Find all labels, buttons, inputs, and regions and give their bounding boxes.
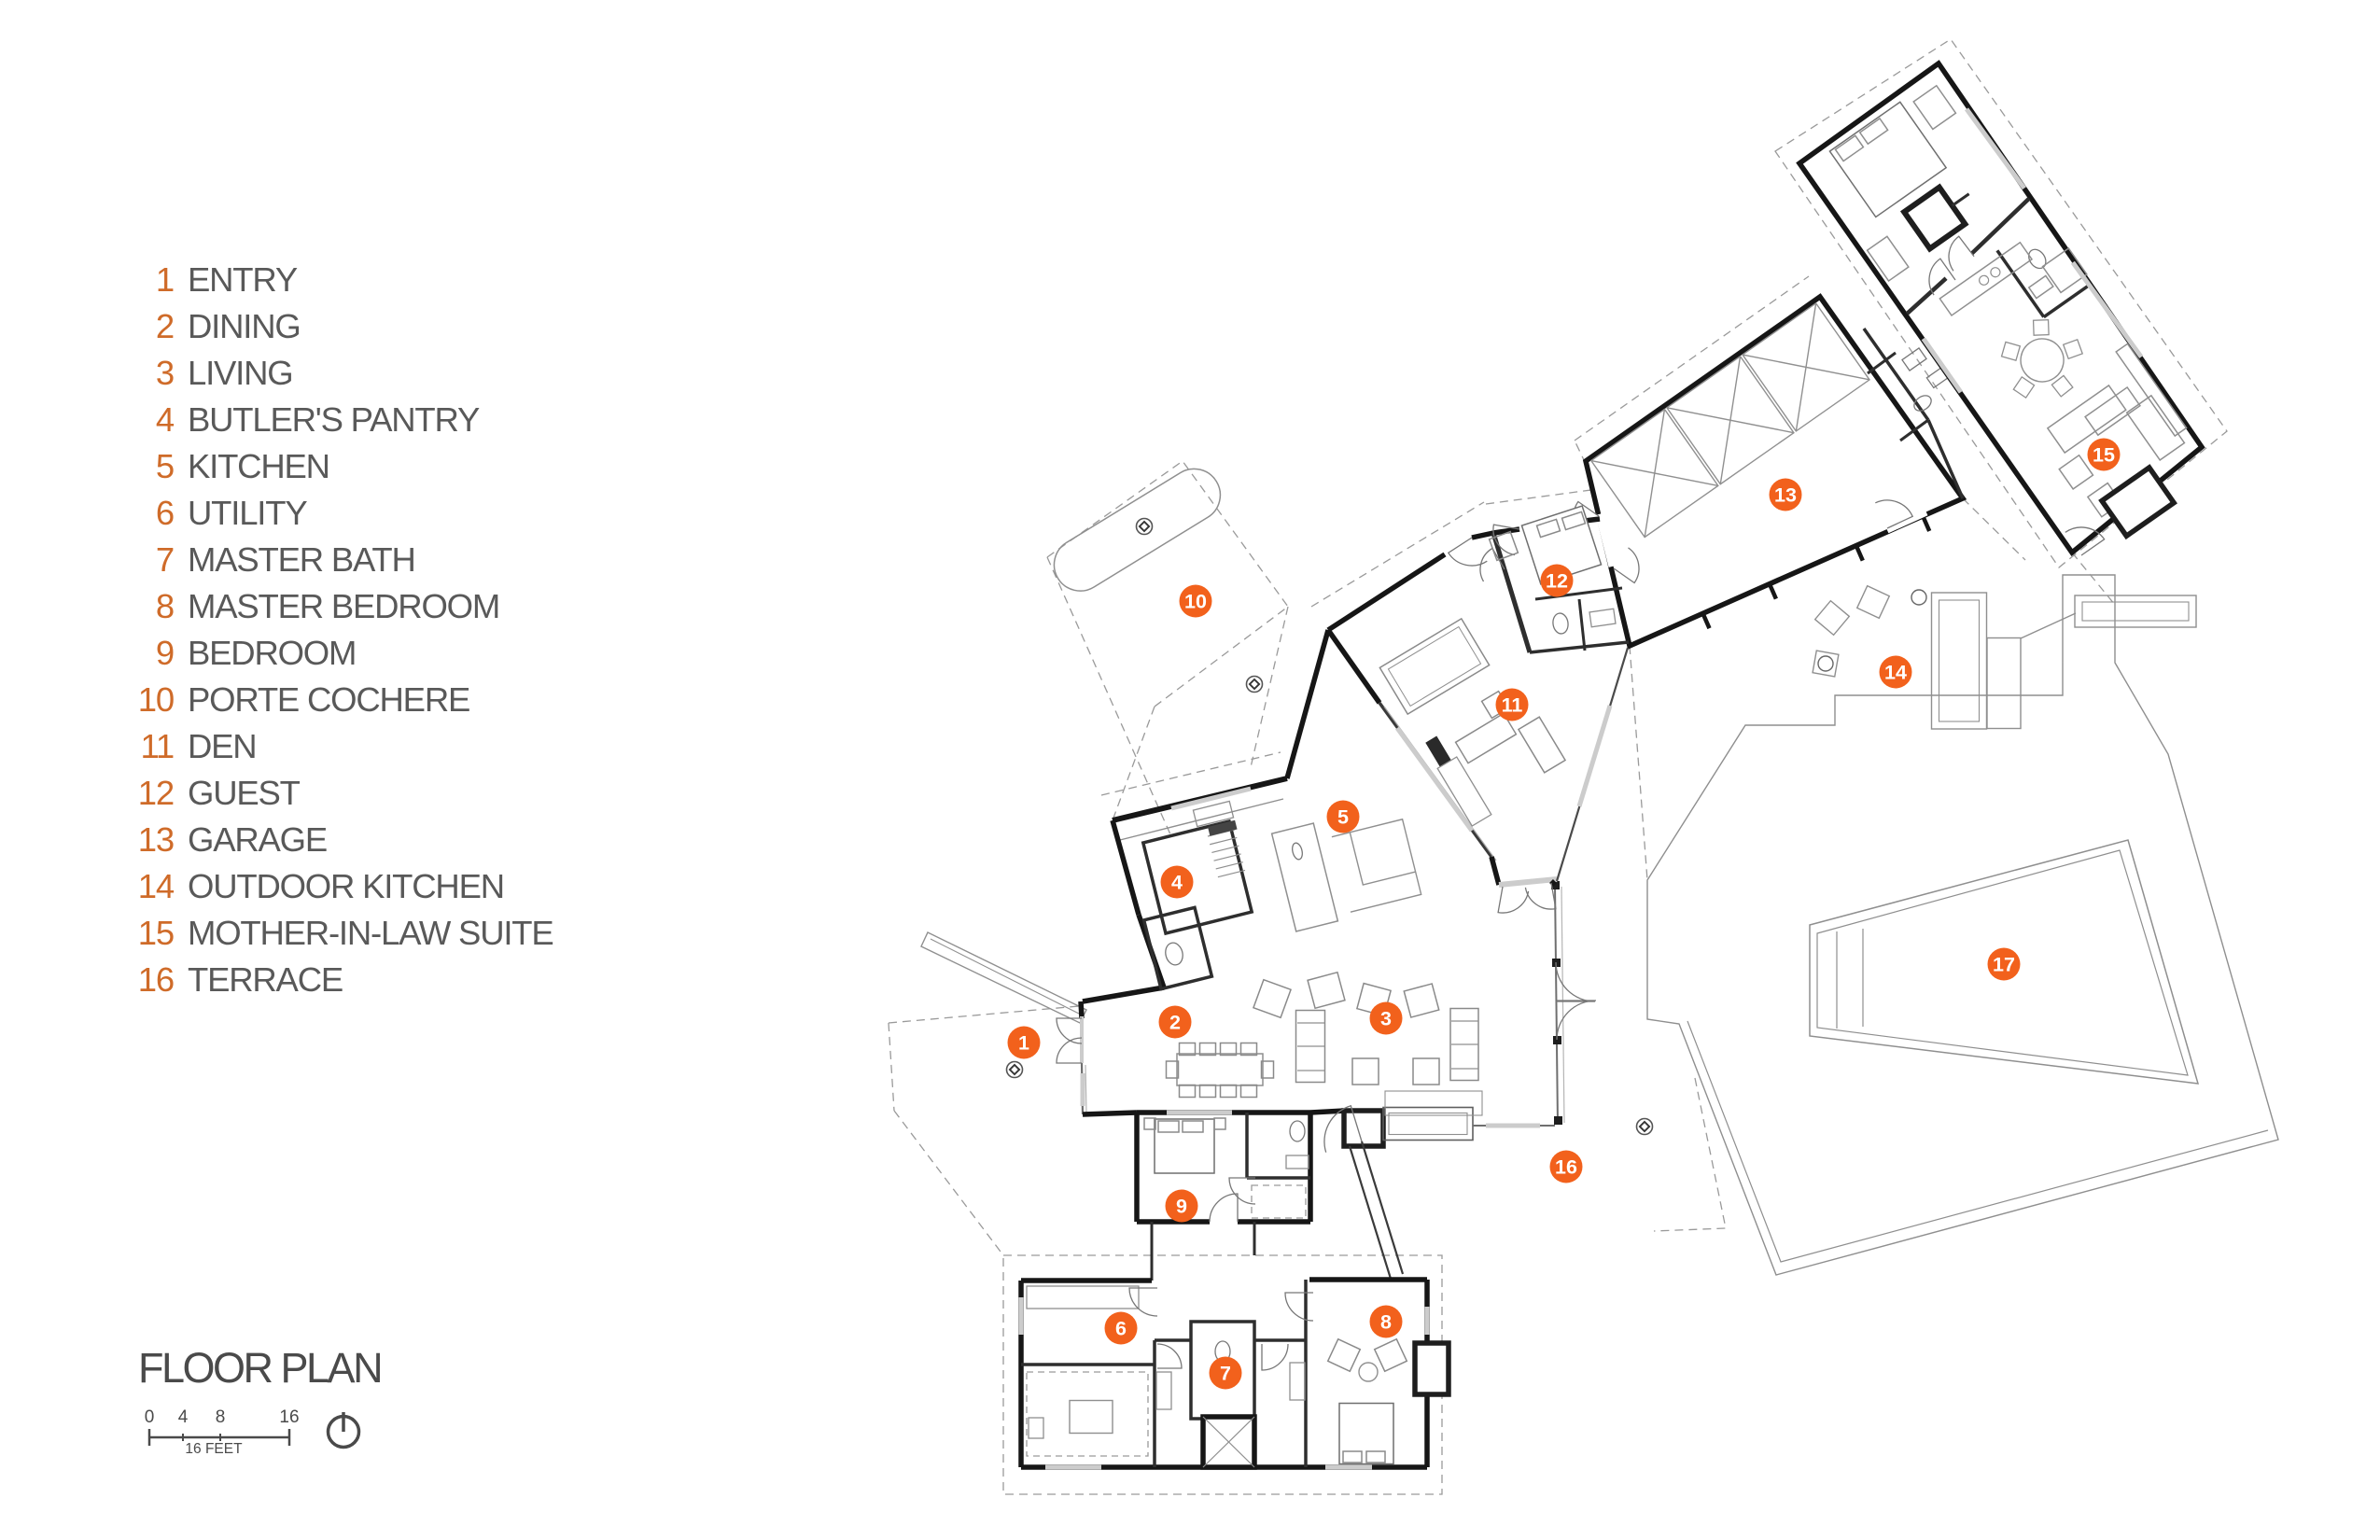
svg-text:UTILITY: UTILITY xyxy=(188,494,307,532)
svg-text:GARAGE: GARAGE xyxy=(188,820,327,859)
svg-text:LIVING: LIVING xyxy=(188,354,292,392)
svg-text:8: 8 xyxy=(216,1407,226,1427)
svg-text:PORTE COCHERE: PORTE COCHERE xyxy=(188,680,469,719)
svg-text:4: 4 xyxy=(178,1407,189,1427)
svg-text:14: 14 xyxy=(1884,662,1907,684)
svg-text:9: 9 xyxy=(1176,1196,1187,1218)
svg-text:5: 5 xyxy=(156,447,174,485)
svg-text:16: 16 xyxy=(1555,1156,1577,1179)
svg-text:ENTRY: ENTRY xyxy=(188,260,298,299)
svg-text:0: 0 xyxy=(145,1407,155,1427)
svg-text:1: 1 xyxy=(156,260,174,299)
svg-text:6: 6 xyxy=(156,494,174,532)
svg-text:10: 10 xyxy=(1184,591,1207,613)
svg-text:5: 5 xyxy=(1337,806,1349,829)
svg-text:3: 3 xyxy=(156,354,174,392)
svg-text:16: 16 xyxy=(138,960,174,999)
svg-text:2: 2 xyxy=(156,307,174,345)
svg-text:8: 8 xyxy=(156,587,174,625)
svg-text:16: 16 xyxy=(279,1407,299,1427)
svg-text:14: 14 xyxy=(138,867,175,905)
svg-text:15: 15 xyxy=(138,914,174,952)
svg-text:MASTER BEDROOM: MASTER BEDROOM xyxy=(188,587,499,625)
svg-text:9: 9 xyxy=(156,634,174,672)
svg-text:DEN: DEN xyxy=(188,727,256,765)
svg-text:16 FEET: 16 FEET xyxy=(185,1441,243,1457)
svg-text:15: 15 xyxy=(2093,444,2115,467)
svg-text:7: 7 xyxy=(156,540,174,579)
svg-text:8: 8 xyxy=(1380,1311,1392,1334)
svg-text:OUTDOOR KITCHEN: OUTDOOR KITCHEN xyxy=(188,867,504,905)
svg-text:17: 17 xyxy=(1993,954,2015,976)
svg-text:MOTHER-IN-LAW SUITE: MOTHER-IN-LAW SUITE xyxy=(188,914,553,952)
svg-text:3: 3 xyxy=(1380,1008,1392,1030)
svg-text:4: 4 xyxy=(156,400,175,439)
svg-text:GUEST: GUEST xyxy=(188,774,301,812)
svg-text:6: 6 xyxy=(1115,1318,1127,1340)
svg-text:DINING: DINING xyxy=(188,307,301,345)
svg-text:12: 12 xyxy=(138,774,174,812)
svg-text:BEDROOM: BEDROOM xyxy=(188,634,356,672)
svg-text:11: 11 xyxy=(1502,694,1523,717)
svg-text:7: 7 xyxy=(1220,1363,1231,1385)
svg-text:12: 12 xyxy=(1546,570,1568,593)
svg-text:KITCHEN: KITCHEN xyxy=(188,447,329,485)
svg-text:4: 4 xyxy=(1171,872,1183,894)
svg-text:FLOOR PLAN: FLOOR PLAN xyxy=(138,1344,381,1392)
svg-text:1: 1 xyxy=(1018,1032,1029,1055)
svg-text:2: 2 xyxy=(1169,1012,1181,1034)
svg-text:13: 13 xyxy=(138,820,174,859)
svg-text:MASTER BATH: MASTER BATH xyxy=(188,540,415,579)
svg-text:BUTLER'S PANTRY: BUTLER'S PANTRY xyxy=(188,400,480,439)
svg-text:13: 13 xyxy=(1774,484,1797,507)
svg-text:10: 10 xyxy=(138,680,174,719)
svg-text:11: 11 xyxy=(141,727,175,765)
svg-text:TERRACE: TERRACE xyxy=(188,960,343,999)
